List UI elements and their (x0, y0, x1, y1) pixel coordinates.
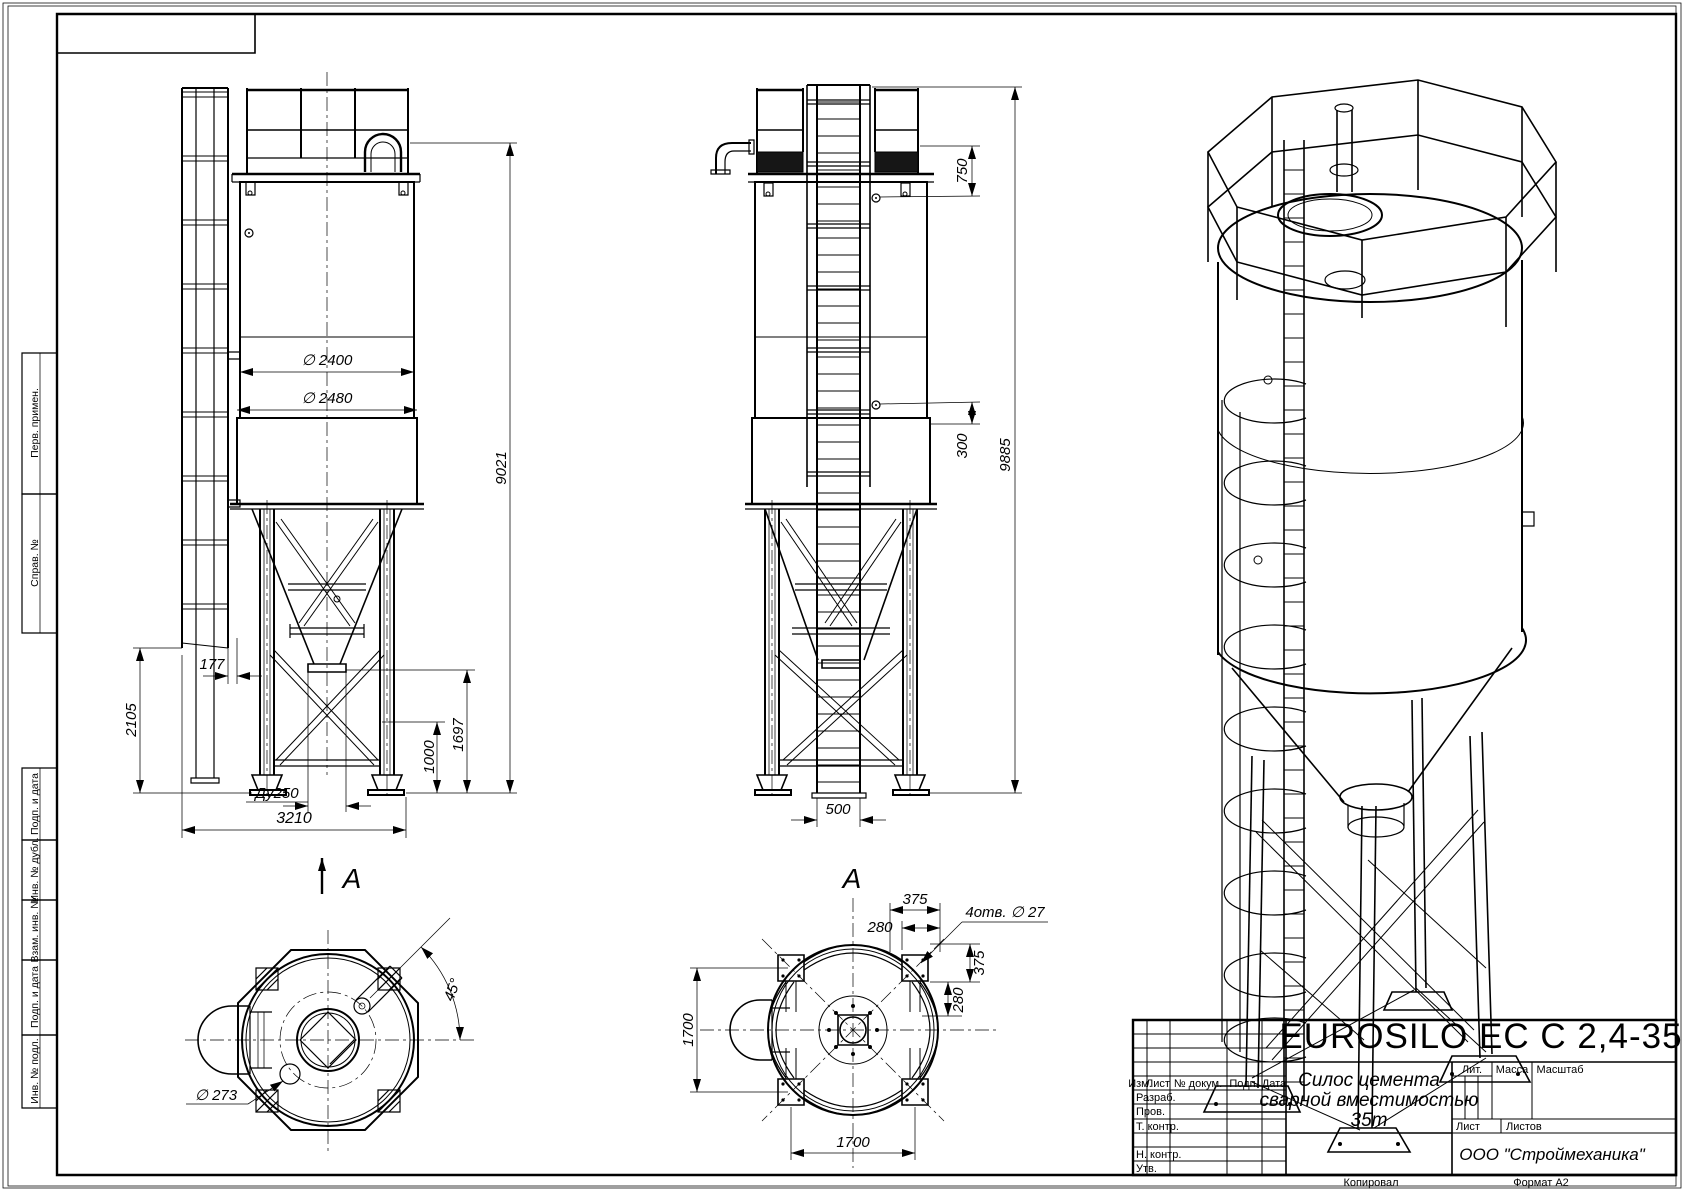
row-razrab: Разраб. (1136, 1092, 1176, 1104)
plan-side-dimensions: 375 280 375 280 4отв. ∅ 27 1700 1700 (680, 891, 1048, 1160)
lifting-lug (246, 182, 255, 195)
dim-500: 500 (825, 801, 851, 818)
view-label-a: А (841, 863, 862, 894)
lifting-lug (901, 183, 910, 196)
row-prov: Пров. (1136, 1106, 1165, 1118)
stamp-label: Подп. и дата (29, 966, 41, 1028)
side-dimensions: 750 300 9885 500 (791, 87, 1022, 827)
side-hopper-truss (765, 509, 917, 766)
lit-label: Лит. (1462, 1064, 1482, 1076)
massa-label: Масса (1496, 1064, 1529, 1076)
stamp-inv-podl: Инв. № подл. (22, 1035, 57, 1108)
iso-top-railing (1208, 80, 1556, 327)
doc-name-line3: 35m (1351, 1110, 1388, 1131)
stamp-podp-data-2: Подп. и дата (22, 960, 57, 1035)
dim-1697: 1697 (450, 718, 467, 752)
iso-roof (1218, 104, 1522, 302)
iso-shell (1218, 260, 1534, 693)
format-label: Формат А2 (1513, 1177, 1569, 1189)
stamp-label: Инв. № подл. (29, 1038, 41, 1103)
dim-177: 177 (199, 656, 225, 673)
lifting-lug (399, 182, 408, 195)
safety-cage-hoops (1222, 379, 1306, 1062)
dim-1700-left: 1700 (680, 1013, 697, 1047)
dim-d2480: ∅ 2480 (302, 390, 353, 407)
row-t-kontr: Т. контр. (1136, 1121, 1179, 1133)
margin-stamps: Перв. примен. Справ. № Подп. и дата Инв.… (22, 353, 57, 1108)
dim-280-right: 280 (950, 987, 967, 1014)
dim-1700-bottom: 1700 (836, 1134, 870, 1151)
row-n-kontr: Н. контр. (1136, 1149, 1181, 1161)
doc-name-line2: сварной вместимостью (1260, 1090, 1479, 1111)
dim-9885: 9885 (997, 438, 1014, 472)
row-utv: Утв. (1136, 1163, 1157, 1175)
iso-ladder (1222, 140, 1306, 1105)
stamp-label: Справ. № (29, 539, 41, 587)
doc-name-line1: Силос цемента (1298, 1070, 1440, 1091)
drawing-sheet: Перв. примен. Справ. № Подп. и дата Инв.… (0, 0, 1684, 1191)
dim-45deg: 45° (441, 976, 465, 1003)
fill-pipe-elbow (711, 140, 754, 174)
dim-375-right: 375 (971, 950, 988, 976)
front-ladder-cage (182, 88, 240, 783)
toe-board (875, 152, 918, 172)
dim-4holes-d27: 4отв. ∅ 27 (965, 904, 1045, 921)
dim-750: 750 (954, 158, 971, 184)
stamp-sprav-no: Справ. № (22, 494, 57, 633)
front-silo-cap (232, 174, 420, 195)
side-silo-shell (745, 182, 937, 509)
list-label: Лист (1456, 1121, 1480, 1133)
dim-9021: 9021 (493, 451, 510, 484)
lifting-lug (764, 183, 773, 196)
dim-3210: 3210 (276, 810, 312, 827)
stamp-podp-data-1: Подп. и дата (22, 768, 57, 840)
stamp-perv-primen: Перв. примен. (22, 353, 57, 494)
col-podp: Подп. (1229, 1078, 1258, 1090)
front-top-railing (247, 88, 408, 174)
col-list: Лист (1146, 1078, 1170, 1090)
doc-designation: EUROSILO EC C 2,4-35 (1279, 1017, 1682, 1056)
side-view: 750 300 9885 500 А (711, 85, 1022, 894)
stamp-label: Взам. инв. № (29, 897, 41, 962)
dim-1000: 1000 (421, 740, 438, 774)
hatch-davit-pipe (365, 134, 401, 172)
stamp-inv-dubl: Инв. № дубл. (22, 837, 57, 902)
stamp-label: Подп. и дата (29, 773, 41, 835)
dim-280-top: 280 (866, 919, 893, 936)
top-left-stamp-box (57, 14, 255, 53)
col-doc-no: № докум. (1174, 1078, 1222, 1090)
company-name: ООО "Строймеханика" (1459, 1145, 1645, 1164)
toe-board (757, 152, 803, 172)
dim-d2400: ∅ 2400 (302, 352, 353, 369)
plan-front-dimensions: 45° ∅ 273 (186, 918, 464, 1104)
side-ladder (807, 85, 870, 798)
sheet-footer: Копировал Формат А2 (1343, 1177, 1568, 1189)
stamp-label: Инв. № дубл. (29, 837, 41, 902)
dim-du250: Ду250 (253, 785, 299, 802)
col-data: Дата (1262, 1078, 1287, 1090)
plan-side-view: 375 280 375 280 4отв. ∅ 27 1700 1700 (680, 891, 1048, 1168)
masshtab-label: Масштаб (1536, 1064, 1583, 1076)
isometric-view (1204, 80, 1556, 1152)
stamp-vzam-inv: Взам. инв. № (22, 897, 57, 962)
dim-300: 300 (954, 433, 971, 459)
vent (1325, 271, 1365, 289)
dim-375-top: 375 (902, 891, 928, 908)
drawing-canvas: Перв. примен. Справ. № Подп. и дата Инв.… (0, 0, 1684, 1191)
dim-2105: 2105 (123, 703, 140, 738)
dim-d273: ∅ 273 (195, 1087, 238, 1104)
stamp-label: Перв. примен. (29, 388, 41, 458)
kopiroval-label: Копировал (1343, 1177, 1398, 1189)
front-view-direction-marker: А (322, 858, 361, 894)
front-view: ∅ 2400 ∅ 2480 9021 2105 177 1000 1697 Ду… (123, 72, 517, 894)
plan-front-view: 45° ∅ 273 (185, 918, 475, 1152)
manhole (1278, 194, 1382, 236)
view-label-a: А (341, 863, 362, 894)
side-top-railing (757, 88, 918, 174)
listov-label: Листов (1506, 1121, 1542, 1133)
